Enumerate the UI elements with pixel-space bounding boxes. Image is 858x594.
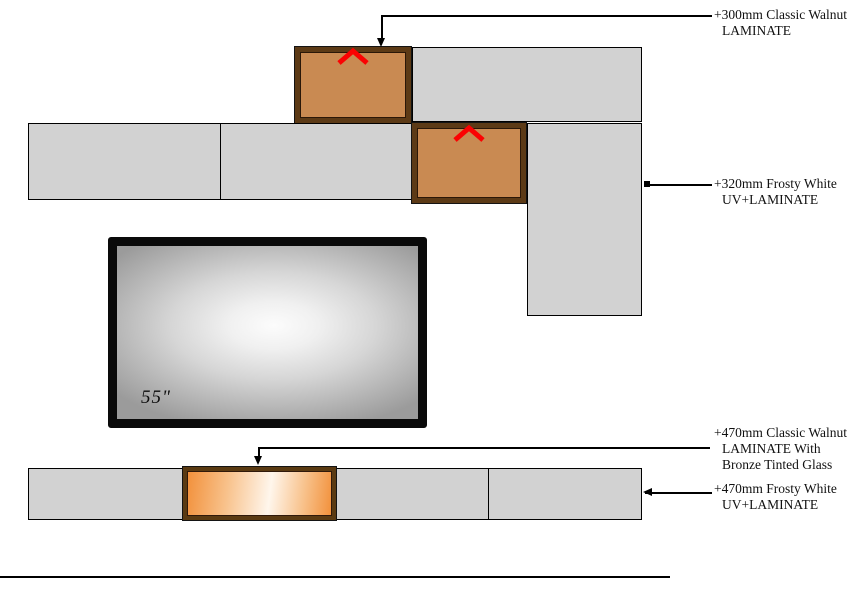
annotation-line: +470mm Frosty White xyxy=(714,481,837,497)
upper-cabinet-gray-panel xyxy=(412,47,642,122)
leader-line-470mm-white xyxy=(645,492,712,494)
shutter-open-direction-icon xyxy=(451,124,487,144)
annotation-470mm-classic-walnut-glass: +470mm Classic Walnut LAMINATE With Bron… xyxy=(714,425,847,473)
annotation-line: Bronze Tinted Glass xyxy=(722,457,847,473)
annotation-line: +320mm Frosty White xyxy=(714,176,837,192)
tv-size-label: 55" xyxy=(141,387,171,409)
annotation-line: +300mm Classic Walnut xyxy=(714,7,847,23)
bronze-tinted-glass-shutter xyxy=(182,466,337,521)
annotation-line: +470mm Classic Walnut xyxy=(714,425,847,441)
annotation-line: UV+LAMINATE xyxy=(722,497,837,513)
base-cabinet-gray-panel-right xyxy=(488,468,642,520)
bronze-tinted-glass-face xyxy=(187,471,332,516)
side-column-gray-panel xyxy=(527,123,642,316)
leader-line-300mm-drop xyxy=(381,15,383,40)
annotation-320mm-frosty-white: +320mm Frosty White UV+LAMINATE xyxy=(714,176,837,208)
mid-cabinet-gray-panel-left xyxy=(28,123,221,200)
floor-line xyxy=(0,576,670,578)
leader-line-300mm xyxy=(381,15,712,17)
leader-arrow-down-icon xyxy=(377,38,385,47)
annotation-line: LAMINATE With xyxy=(722,441,847,457)
leader-square-marker-icon xyxy=(644,181,650,187)
leader-arrow-down-icon xyxy=(254,456,262,465)
shutter-open-direction-icon xyxy=(335,47,371,67)
television: 55" xyxy=(108,237,427,428)
annotation-300mm-classic-walnut: +300mm Classic Walnut LAMINATE xyxy=(714,7,847,39)
annotation-line: LAMINATE xyxy=(722,23,847,39)
base-cabinet-gray-panel-mid xyxy=(336,468,489,520)
leader-arrow-left-icon xyxy=(643,488,652,496)
mid-cabinet-gray-panel-right xyxy=(220,123,412,200)
leader-line-320mm xyxy=(645,184,712,186)
base-cabinet-gray-panel-left xyxy=(28,468,183,520)
annotation-line: UV+LAMINATE xyxy=(722,192,837,208)
elevation-drawing-canvas: 55" +300mm Classic Walnut LAMINATE +320m… xyxy=(0,0,858,594)
annotation-470mm-frosty-white: +470mm Frosty White UV+LAMINATE xyxy=(714,481,837,513)
leader-line-470mm-glass xyxy=(258,447,710,449)
